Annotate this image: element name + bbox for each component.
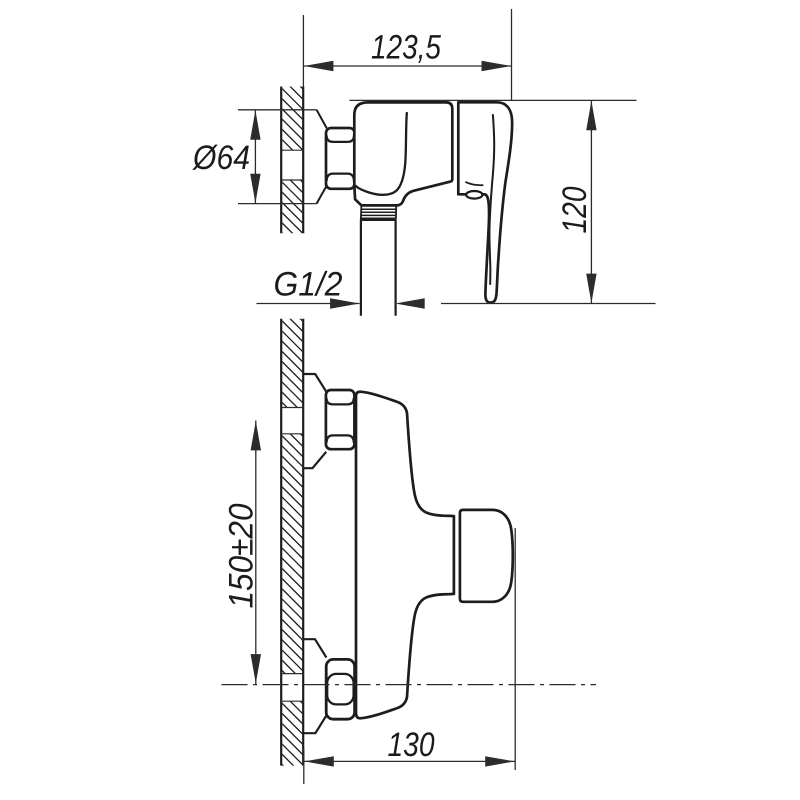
svg-text:Ø64: Ø64 bbox=[192, 139, 250, 177]
svg-text:G1/2: G1/2 bbox=[273, 265, 342, 303]
svg-text:123,5: 123,5 bbox=[371, 28, 441, 66]
svg-text:130: 130 bbox=[387, 726, 434, 764]
svg-text:120: 120 bbox=[556, 186, 594, 233]
svg-text:150±20: 150±20 bbox=[222, 503, 260, 608]
